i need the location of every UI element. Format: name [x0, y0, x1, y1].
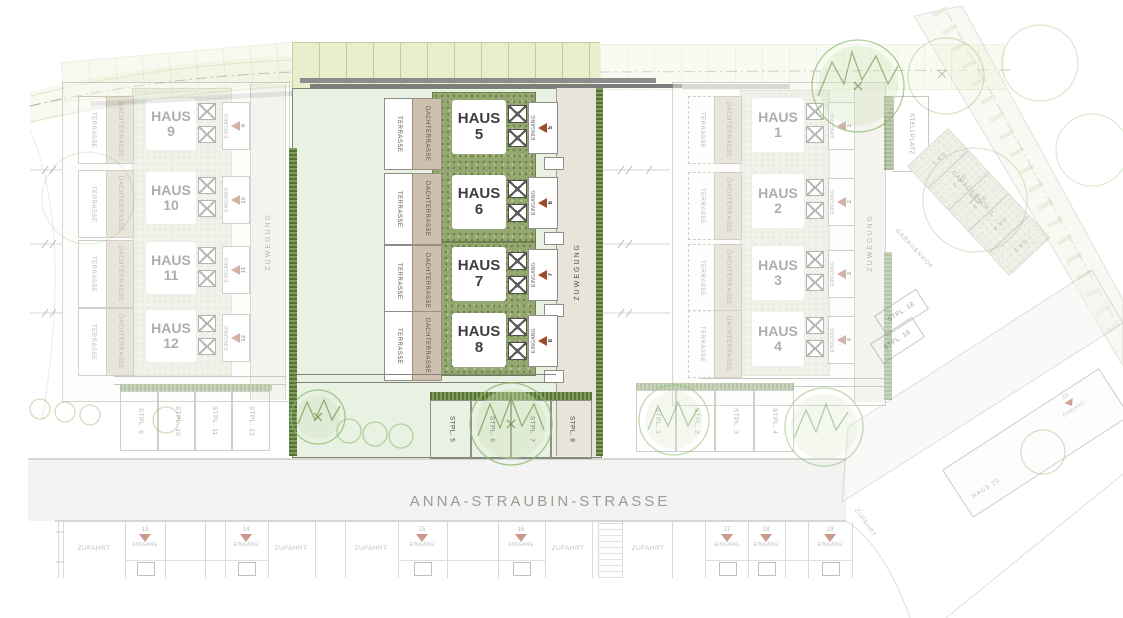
entrance-arrow-icon [721, 534, 733, 542]
crosswalk-hatch [598, 522, 622, 578]
entrance-arrow-icon [515, 534, 527, 542]
entrance-15: 15EINGANG [404, 527, 440, 548]
zufahrt-label: ZUFAHRT [624, 546, 672, 553]
zufahrt-label: ZUFAHRT [544, 546, 592, 553]
entrance-arrow-icon [240, 534, 252, 542]
zufahrt-label: ZUFAHRT [70, 546, 118, 553]
entrance-16: 16EINGANG [503, 527, 539, 548]
entrance-arrow-icon [760, 534, 772, 542]
entrance-arrow-icon [139, 534, 151, 542]
site-plan: TERRASSE DACHTERRASSE HAUS9 EINGANG9 TER… [0, 0, 1123, 618]
entrance-14: 14EINGANG [228, 527, 264, 548]
entrance-arrow-icon [824, 534, 836, 542]
entrance-19: 19EINGANG [812, 527, 848, 548]
south-lot-strip: ZUFAHRT ZUFAHRT ZUFAHRT ZUFAHRT ZUFAHRT … [0, 0, 1123, 618]
entrance-13: 13EINGANG [127, 527, 163, 548]
zufahrt-label: ZUFAHRT [347, 546, 395, 553]
entrance-17: 17EINGANG [709, 527, 745, 548]
entrance-18: 18EINGANG [748, 527, 784, 548]
entrance-arrow-icon [416, 534, 428, 542]
zufahrt-label: ZUFAHRT [267, 546, 315, 553]
